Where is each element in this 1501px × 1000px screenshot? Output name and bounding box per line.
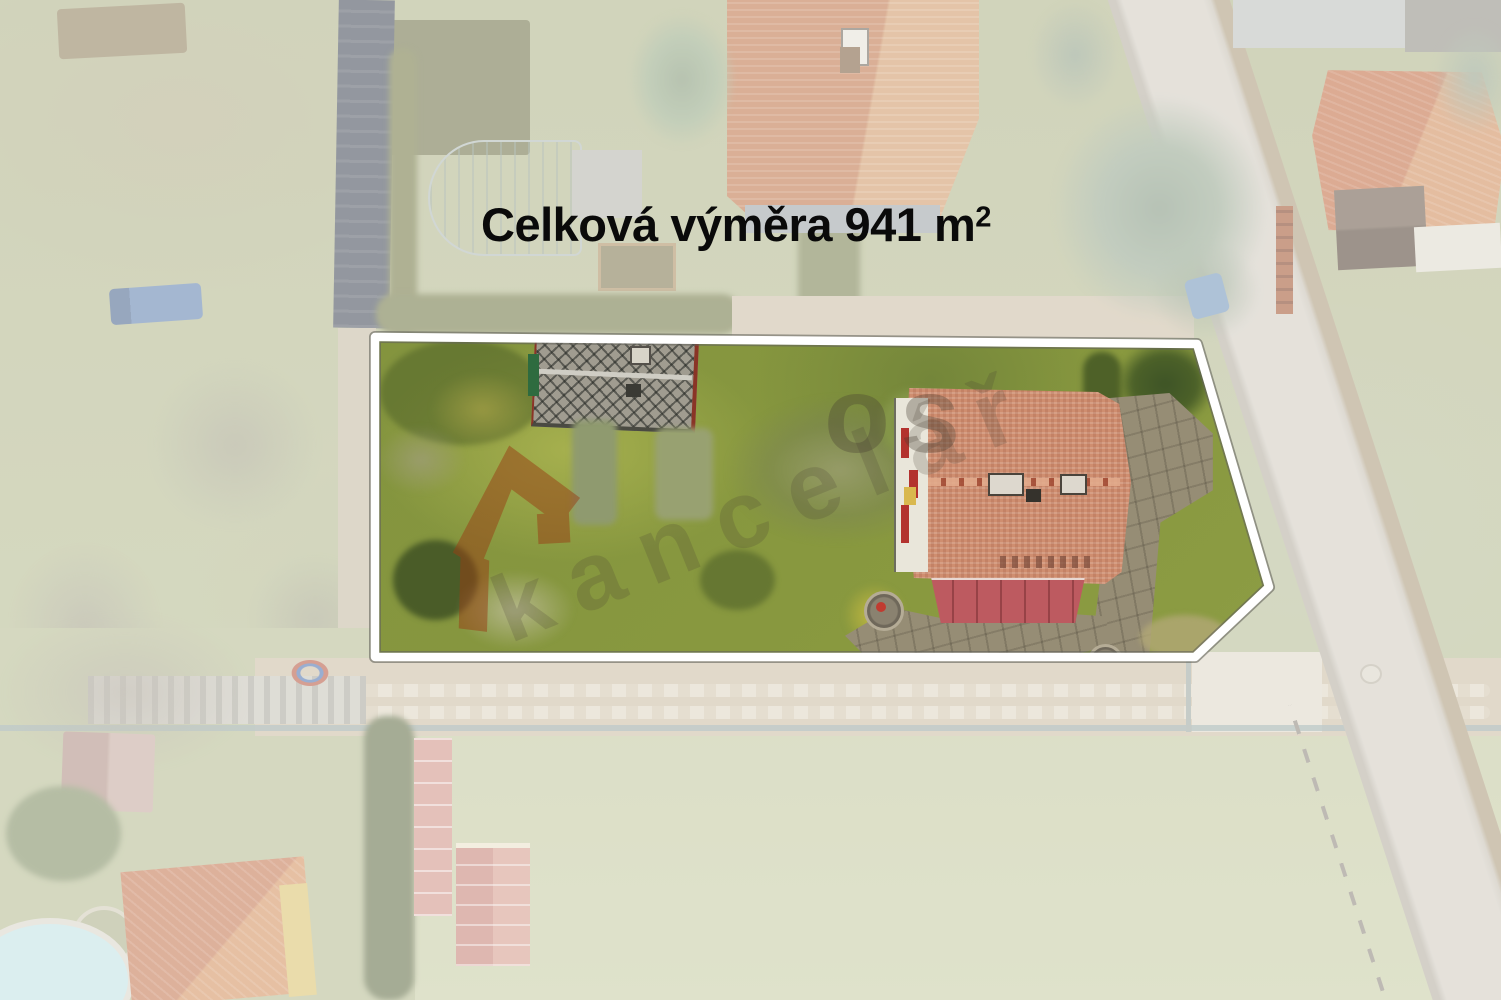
plot-outline [375, 337, 1269, 657]
total-area-text: Celková výměra 941 m [481, 198, 975, 251]
plot-outline-overlay [0, 0, 1501, 1000]
total-area-superscript: 2 [975, 201, 991, 233]
total-area-caption: Celková výměra 941 m2 [481, 197, 991, 252]
plot-outline-shadow [375, 337, 1269, 657]
aerial-listing-photo: os kancelář Celková výměra 941 m2 [0, 0, 1501, 1000]
